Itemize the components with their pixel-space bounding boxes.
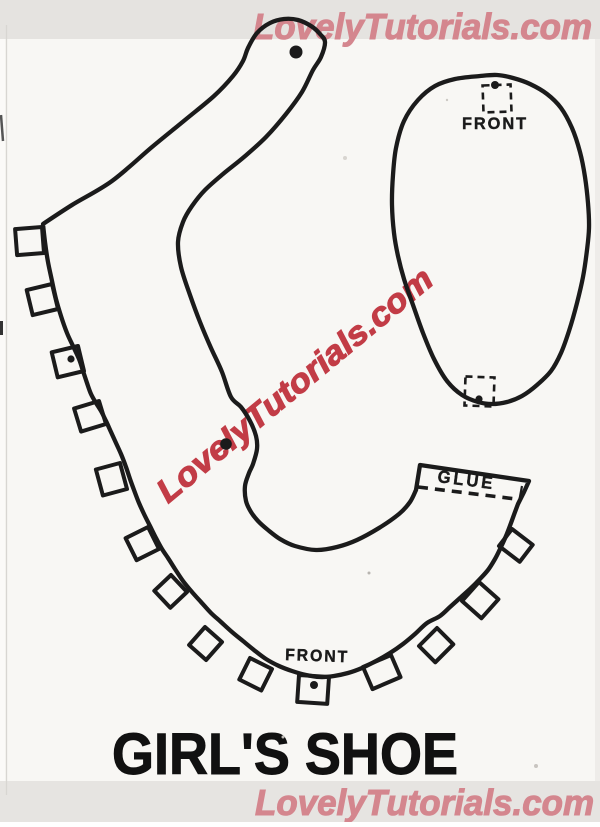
svg-text:FRONT: FRONT (462, 114, 528, 133)
svg-text:FRONT: FRONT (285, 646, 350, 666)
svg-text:LovelyTutorials.com: LovelyTutorials.com (255, 782, 594, 822)
svg-text:LovelyTutorials.com: LovelyTutorials.com (253, 6, 592, 47)
svg-text:GIRL'S SHOE: GIRL'S SHOE (112, 722, 458, 787)
